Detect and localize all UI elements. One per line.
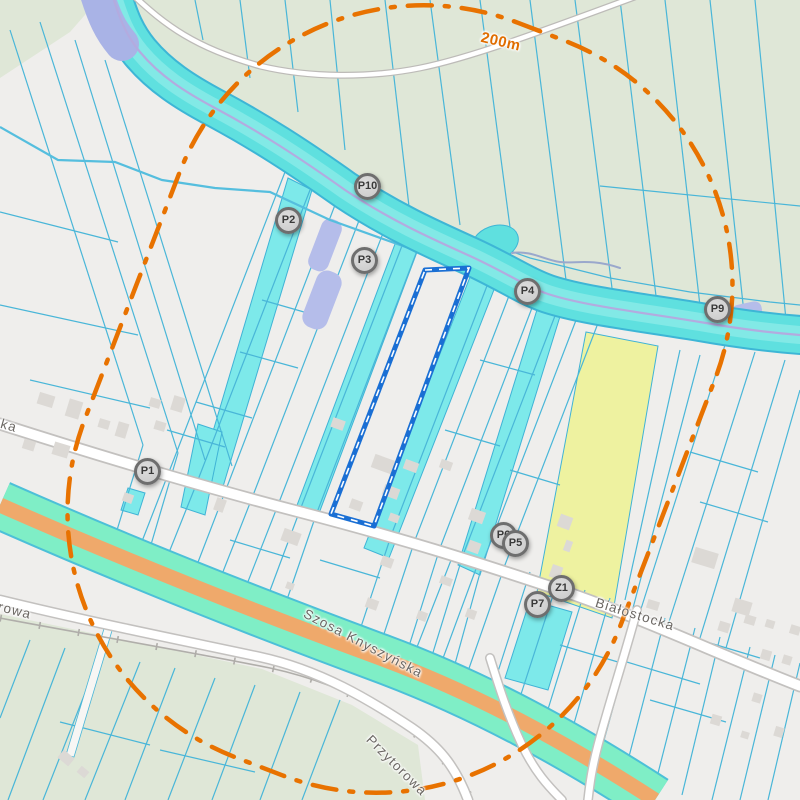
marker-label: P2 [282,215,295,226]
marker-P5[interactable]: P5 [502,530,529,557]
marker-label: P10 [358,181,378,192]
marker-label: P7 [531,599,544,610]
marker-P1[interactable]: P1 [134,458,161,485]
marker-label: Z1 [555,583,568,594]
map-artwork [0,0,800,800]
marker-P9[interactable]: P9 [704,296,731,323]
map-canvas[interactable]: Białostocka Białostocka Szosa Knyszyńska… [0,0,800,800]
marker-P10[interactable]: P10 [354,173,381,200]
marker-label: P3 [358,255,371,266]
marker-Z1[interactable]: Z1 [548,575,575,602]
marker-label: P1 [141,466,154,477]
marker-label: P4 [521,286,534,297]
marker-label: P5 [509,538,522,549]
marker-P4[interactable]: P4 [514,278,541,305]
marker-P7[interactable]: P7 [524,591,551,618]
marker-P2[interactable]: P2 [275,207,302,234]
marker-label: P9 [711,304,724,315]
marker-P3[interactable]: P3 [351,247,378,274]
